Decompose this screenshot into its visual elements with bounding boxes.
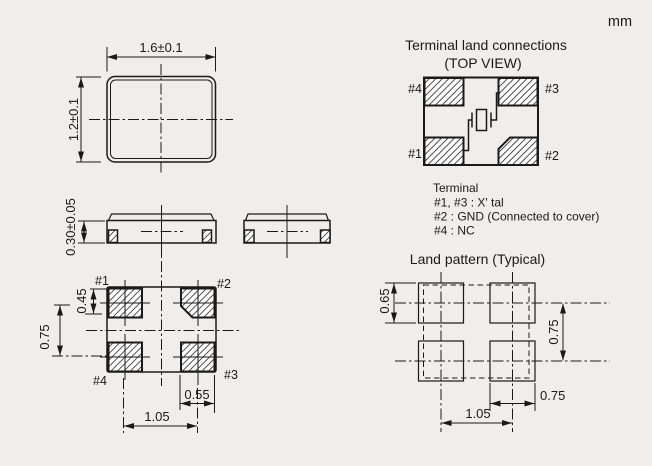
drawing-canvas: 1.6±0.1 1.2±0.1 0.30±0.05 [0,0,652,466]
legend-line-1: #1, #3 : X' tal [434,196,504,210]
connections-title: Terminal land connections [405,37,567,53]
solder-pad [203,230,212,243]
bottom-pad-2-label: #2 [217,277,231,291]
side-view-front [107,205,216,258]
package-bottom-view: #1 #2 #3 #4 0.45 0.75 0.55 1.05 [37,261,240,433]
solder-pad [321,230,331,243]
solder-pad [109,230,118,243]
top-pad-4-label: #4 [408,82,422,96]
top-pad-3-label: #3 [545,82,559,96]
terminal-land-connections: Terminal land connections (TOP VIEW) #4 … [405,37,567,165]
top-pad-2-chamfered [499,138,538,166]
height-dim-label: 1.2±0.1 [66,98,81,141]
land-width-dim-label: 0.75 [540,388,565,403]
legend-title: Terminal [433,181,478,195]
package-top-view: 1.6±0.1 1.2±0.1 [66,40,233,174]
top-pad-3 [499,78,538,106]
connections-subtitle: (TOP VIEW) [444,55,521,71]
thickness-dim-label: 0.30±0.05 [63,198,78,256]
unit-label: mm [608,14,632,30]
width-dim-label: 1.6±0.1 [139,40,182,55]
top-pad-1-label: #1 [408,147,422,161]
row-pitch-dim-label: 0.75 [37,324,52,349]
bottom-pad-1-label: #1 [95,274,109,288]
terminal-legend: Terminal #1, #3 : X' tal #2 : GND (Conne… [433,181,599,238]
bottom-pad-4-label: #4 [93,374,107,388]
pad-height-dim-label: 0.45 [74,288,89,313]
land-col-pitch-dim-label: 1.05 [465,406,490,421]
top-pad-4 [425,78,464,106]
top-pad-1 [425,138,464,166]
col-pitch-dim-label: 1.05 [144,409,169,424]
crystal-package-dimension-drawing: 1.6±0.1 1.2±0.1 0.30±0.05 [0,0,652,466]
land-height-dim-label: 0.65 [377,288,392,313]
crystal-symbol [463,93,500,151]
legend-line-3: #4 : NC [434,224,475,238]
land-pattern-title: Land pattern (Typical) [410,251,545,267]
solder-pad [245,230,255,243]
thickness-dimension: 0.30±0.05 [63,198,105,256]
crystal-body [477,110,487,131]
package-outline-dashed [424,285,530,378]
land-pattern: Land pattern (Typical) 0.65 0.75 0.75 1.… [377,251,610,432]
land-row-pitch-dim-label: 0.75 [546,319,561,344]
top-pad-2-label: #2 [545,149,559,163]
bottom-pad-3-label: #3 [224,368,238,382]
legend-line-2: #2 : GND (Connected to cover) [434,210,599,224]
side-view-side [244,205,330,258]
